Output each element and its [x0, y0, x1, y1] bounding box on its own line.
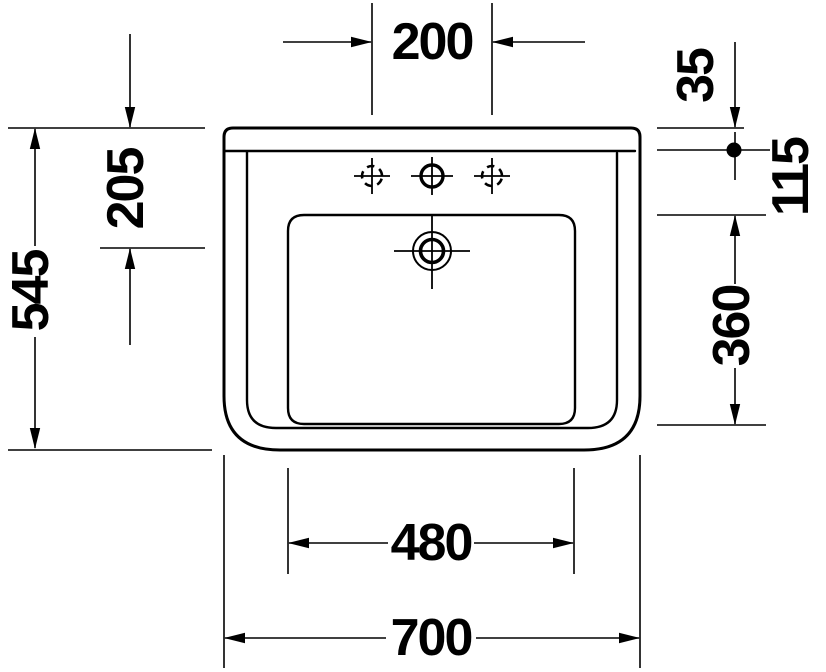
dimension-rim-to-drain: 205 — [97, 34, 205, 345]
arrowhead — [730, 215, 740, 236]
dimension-tap-hole-spacing: 200 — [283, 3, 585, 115]
dimension-rim-to-fixing-hole: 35 — [657, 42, 744, 128]
arrowhead — [288, 538, 309, 548]
arrowhead — [553, 538, 574, 548]
drawing-svg: 200 545 205 35 115 — [0, 0, 826, 672]
arrowhead — [125, 107, 135, 128]
arrowhead — [224, 633, 245, 643]
dimension-bowl-depth: 360 — [657, 215, 766, 425]
arrowhead — [492, 37, 513, 47]
dim-label-tap-hole-spacing: 200 — [392, 13, 473, 71]
dim-label-rim-to-fixing-hole: 35 — [667, 48, 725, 103]
arrowhead — [30, 128, 40, 149]
fixing-point-dot — [727, 143, 742, 158]
dimension-bowl-width: 480 — [288, 468, 574, 574]
dim-label-rim-to-drain: 205 — [97, 148, 155, 230]
arrowhead — [351, 37, 372, 47]
dim-label-overall-depth: 545 — [2, 250, 60, 332]
dim-label-fixing-hole-to-bowl: 115 — [762, 137, 820, 216]
dim-label-bowl-width: 480 — [391, 514, 472, 572]
arrowhead — [125, 248, 135, 269]
dimension-fixing-hole-to-bowl: 115 — [762, 137, 820, 216]
tap-hole-left — [354, 158, 390, 194]
arrowhead — [619, 633, 640, 643]
tap-holes — [354, 157, 510, 195]
drain — [394, 215, 470, 289]
dim-label-overall-width: 700 — [391, 609, 472, 667]
tap-hole-right — [474, 158, 510, 194]
dim-label-bowl-depth: 360 — [703, 286, 761, 367]
arrowhead — [730, 404, 740, 425]
arrowhead — [730, 107, 740, 128]
arrowhead — [30, 428, 40, 449]
washbasin-technical-drawing: 200 545 205 35 115 — [0, 0, 826, 672]
fixing-point-marker — [657, 132, 770, 180]
tap-hole-center — [411, 157, 453, 195]
